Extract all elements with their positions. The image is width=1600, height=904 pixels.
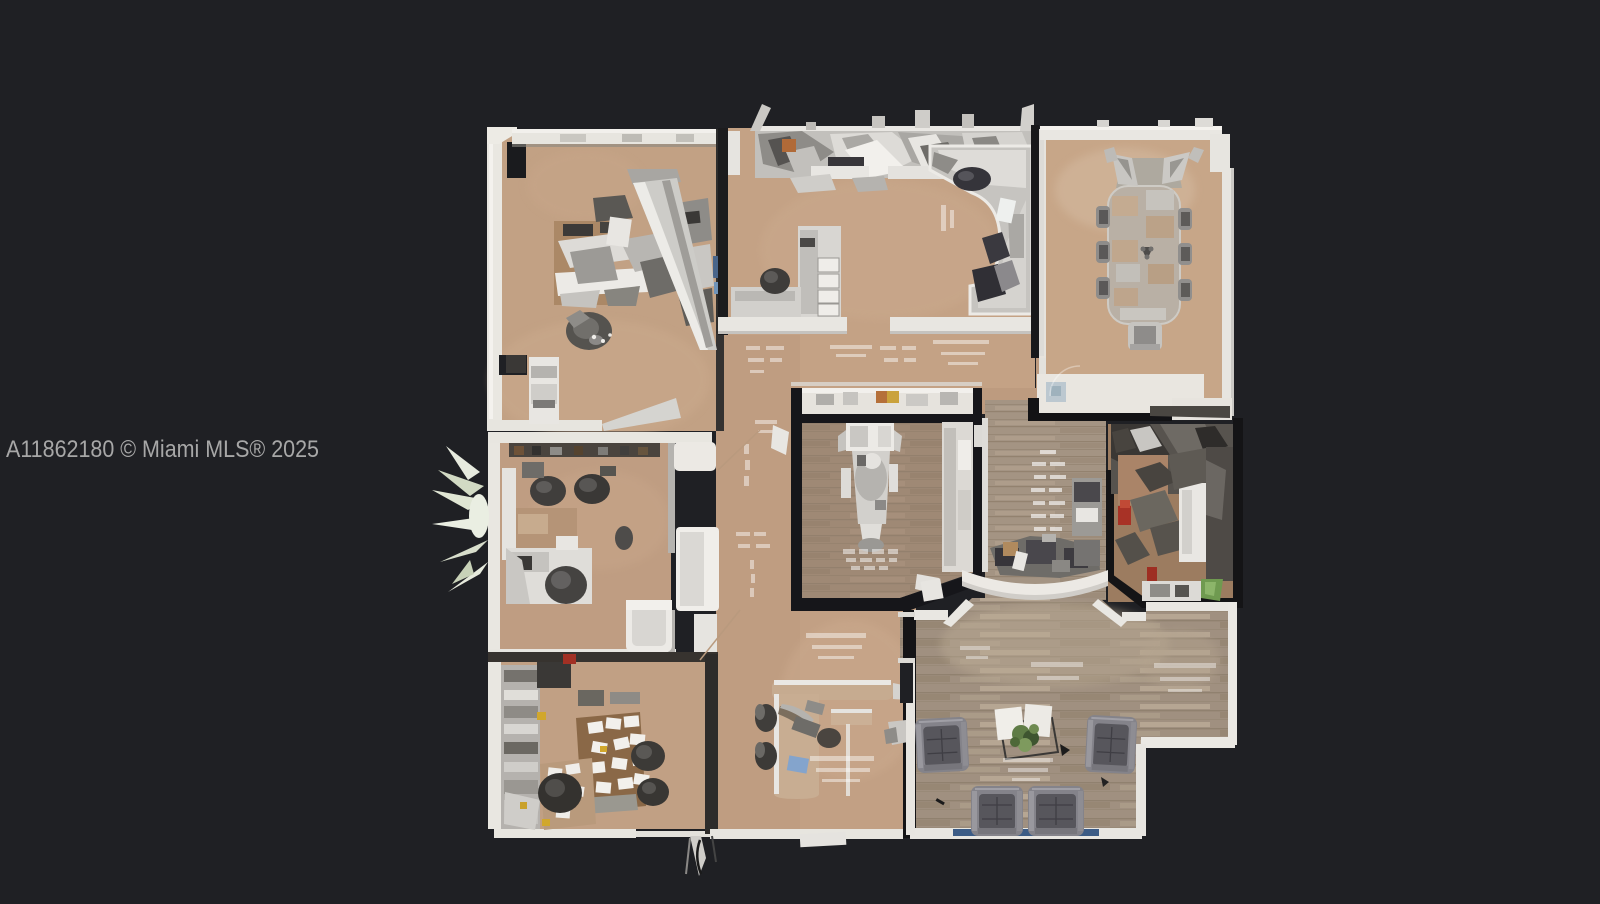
svg-text:A11862180 © Miami MLS® 2025: A11862180 © Miami MLS® 2025 bbox=[6, 436, 319, 463]
